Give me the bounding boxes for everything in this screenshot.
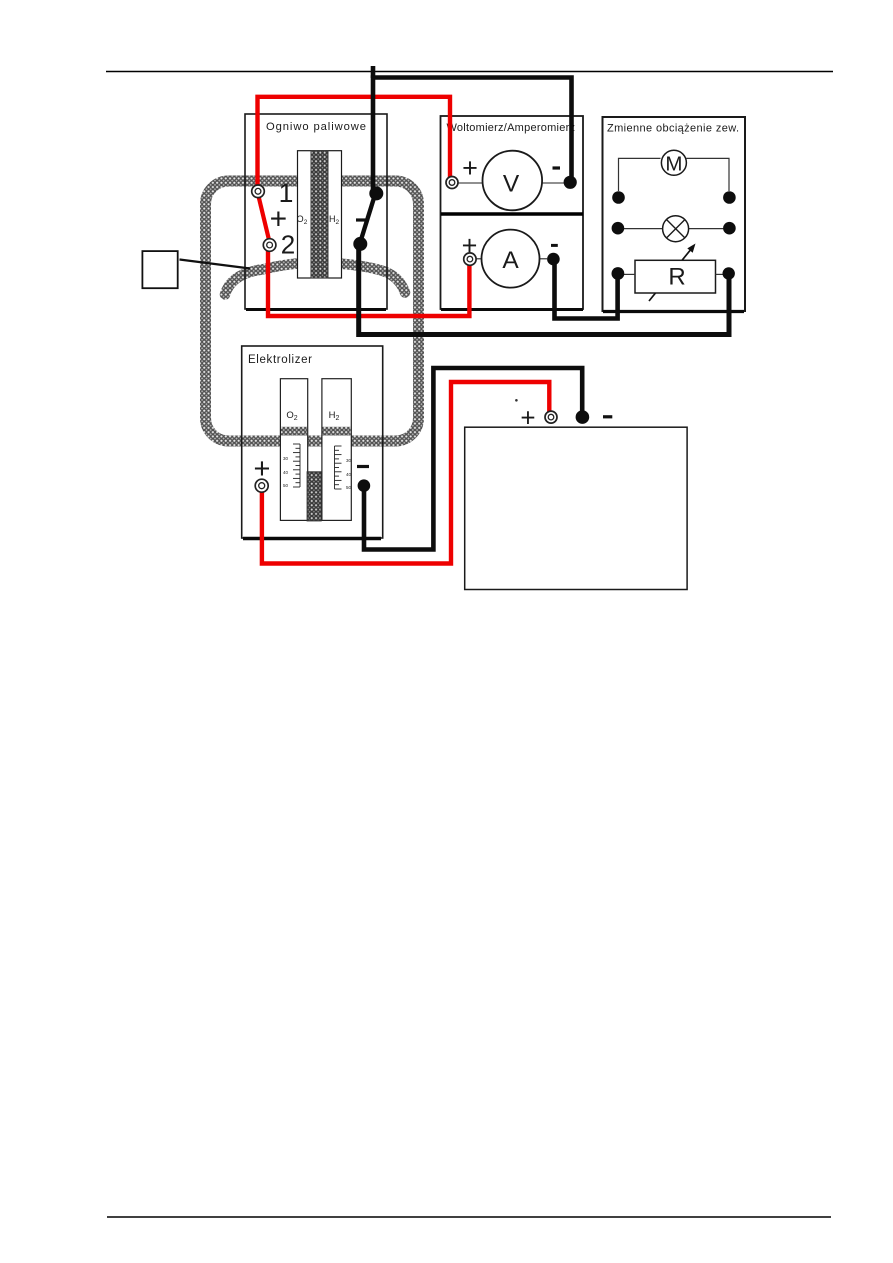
svg-text:50: 50 [346, 485, 352, 490]
svg-text:30: 30 [283, 456, 289, 461]
svg-text:R: R [668, 264, 685, 291]
svg-text:40: 40 [346, 472, 352, 477]
svg-text:50: 50 [283, 483, 289, 488]
svg-text:A: A [502, 247, 519, 274]
svg-text:+: + [462, 231, 478, 261]
svg-text:Ogniwo paliwowe: Ogniwo paliwowe [266, 121, 366, 133]
svg-text:Elektrolizer: Elektrolizer [248, 354, 312, 366]
svg-text:Zmienne obciążenie zew.: Zmienne obciążenie zew. [607, 123, 739, 135]
svg-text:+: + [462, 153, 478, 183]
svg-text:M: M [665, 152, 682, 175]
svg-text:40: 40 [283, 470, 289, 475]
svg-text:Woltomierz/Amperomierz: Woltomierz/Amperomierz [447, 122, 576, 134]
svg-text:+: + [270, 202, 288, 235]
svg-text:V: V [503, 171, 520, 198]
svg-text:+: + [520, 402, 535, 432]
svg-text:30: 30 [346, 458, 352, 463]
